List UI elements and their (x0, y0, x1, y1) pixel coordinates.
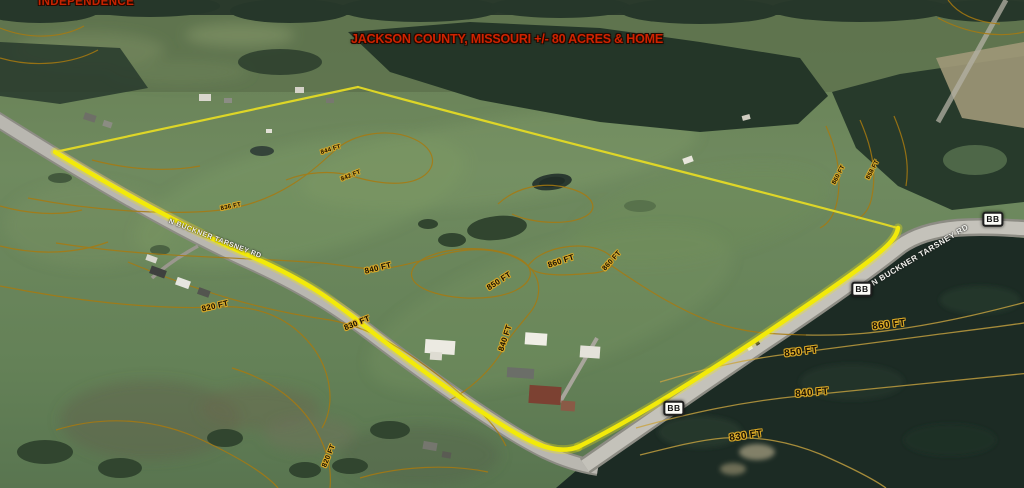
aerial-property-map: INDEPENDENCE JACKSON COUNTY, MISSOURI +/… (0, 0, 1024, 488)
map-title: JACKSON COUNTY, MISSOURI +/- 80 ACRES & … (0, 32, 1014, 46)
route-shield-BB: BB (851, 282, 872, 297)
satellite-imagery (0, 0, 1024, 488)
city-label-independence: INDEPENDENCE (38, 0, 134, 8)
route-shield-BB: BB (663, 401, 684, 416)
route-shield-BB: BB (982, 212, 1003, 227)
